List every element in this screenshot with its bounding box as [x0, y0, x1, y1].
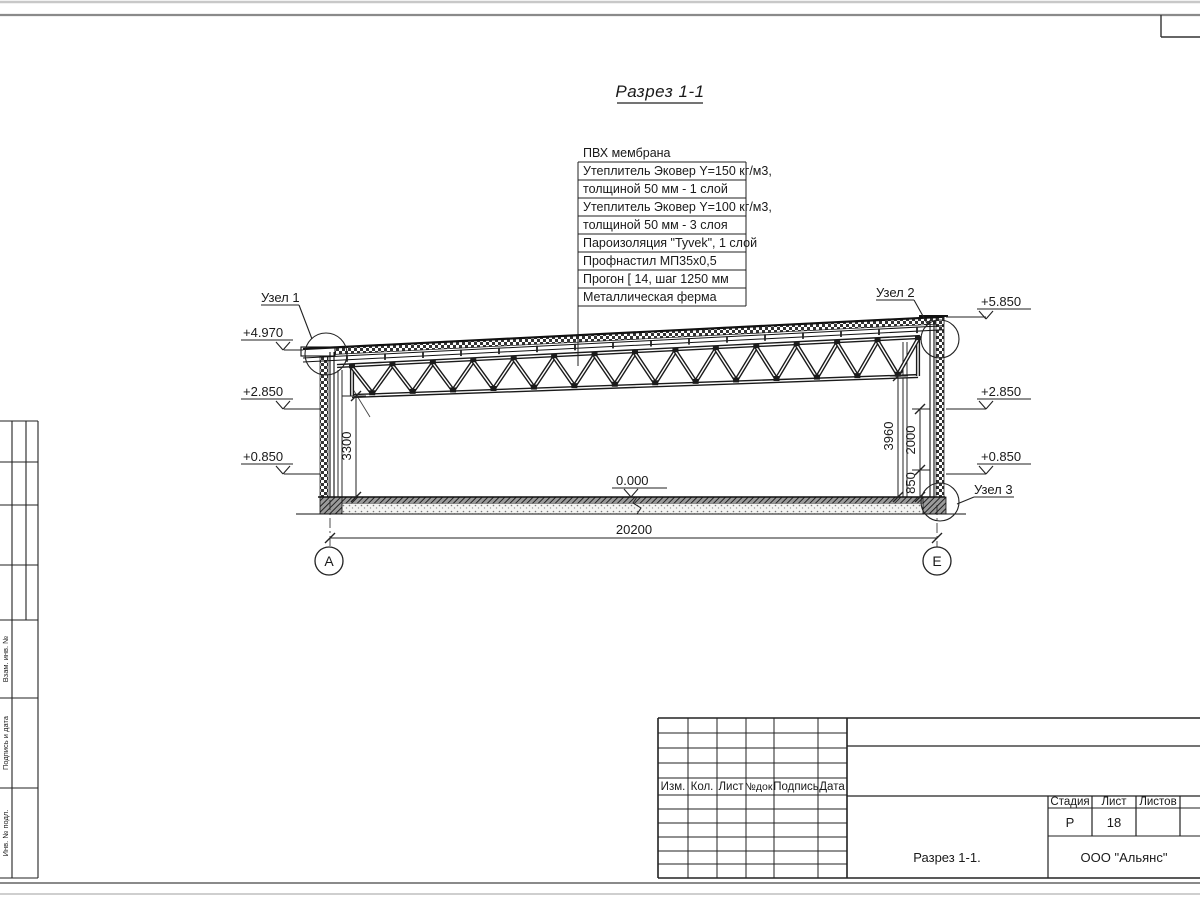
- grid-axis-left: А: [324, 554, 333, 568]
- strip-inv-podl: Инв. № подл.: [0, 810, 13, 857]
- section-title: Разрез 1-1: [615, 85, 704, 99]
- elevation-left-top: +4.970: [243, 326, 283, 340]
- callout-profiled-sheet: Профнастил МП35х0,5: [583, 254, 717, 268]
- node-3-label: Узел 3: [974, 483, 1013, 497]
- tb-col-kol: Кол.: [691, 780, 714, 794]
- elevation-right-low: +0.850: [981, 450, 1021, 464]
- tb-col-podpis: Подпись: [773, 780, 819, 794]
- tb-sheets-label: Листов: [1139, 795, 1176, 809]
- elevation-floor: 0.000: [616, 474, 649, 488]
- tb-stage-value: Р: [1066, 816, 1075, 830]
- elevation-left-low: +0.850: [243, 450, 283, 464]
- callout-insulation-100-layers: толщиной 50 мм - 3 слоя: [583, 218, 728, 232]
- strip-vzam-inv: Взам. инв. №: [0, 636, 13, 682]
- elevation-right-mid: +2.850: [981, 385, 1021, 399]
- callout-steel-truss: Металлическая ферма: [583, 290, 717, 304]
- sheet-frame: [0, 2, 1200, 894]
- callout-insulation-150: Утеплитель Эковер Y=150 кг/м3,: [583, 164, 772, 178]
- callout-insulation-100: Утеплитель Эковер Y=100 кг/м3,: [583, 200, 772, 214]
- dim-opening: 2000: [904, 426, 918, 455]
- callout-membrane: ПВХ мембрана: [583, 146, 671, 160]
- dim-span: 20200: [616, 523, 652, 537]
- grid-axis-right: Е: [932, 554, 941, 568]
- dim-sill: 850: [904, 472, 918, 494]
- tb-sheet-label: Лист: [1102, 795, 1127, 809]
- tb-sheet-value: 18: [1107, 816, 1121, 830]
- tb-col-list: Лист: [719, 780, 744, 794]
- tb-col-doc: №док.: [745, 780, 776, 794]
- tb-col-izm: Изм.: [661, 780, 686, 794]
- dim-left-height: 3300: [340, 432, 354, 461]
- node-2-label: Узел 2: [876, 286, 915, 300]
- callout-insulation-150-layers: толщиной 50 мм - 1 слой: [583, 182, 728, 196]
- callout-vapour-barrier: Пароизоляция "Tyvek", 1 слой: [583, 236, 757, 250]
- node-1-label: Узел 1: [261, 291, 300, 305]
- elevation-right-top: +5.850: [981, 295, 1021, 309]
- strip-podpis-data: Подпись и дата: [0, 716, 13, 770]
- tb-drawing-name: Разрез 1-1.: [913, 851, 980, 865]
- dim-right-height: 3960: [882, 422, 896, 451]
- tb-stage-label: Стадия: [1050, 795, 1089, 809]
- elevation-left-mid: +2.850: [243, 385, 283, 399]
- tb-col-data: Дата: [819, 780, 844, 794]
- tb-company: ООО "Альянс": [1081, 851, 1168, 865]
- callout-purlin: Прогон [ 14, шаг 1250 мм: [583, 272, 729, 286]
- drawing-sheet: Разрез 1-1 ПВХ мембрана Утеплитель Экове…: [0, 0, 1200, 900]
